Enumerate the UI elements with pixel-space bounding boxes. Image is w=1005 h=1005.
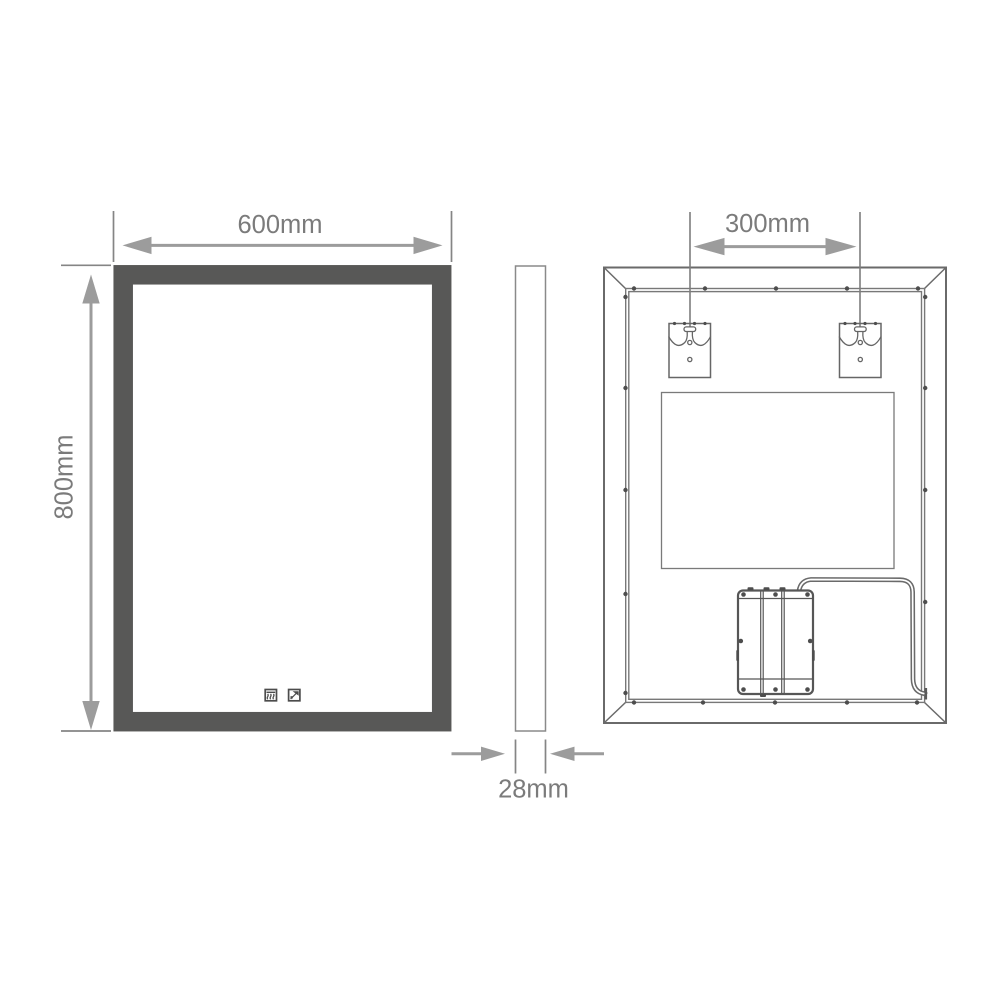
- svg-text:800mm: 800mm: [51, 434, 79, 519]
- svg-text:28mm: 28mm: [498, 776, 569, 804]
- svg-text:600mm: 600mm: [237, 211, 322, 239]
- svg-text:300mm: 300mm: [725, 210, 810, 238]
